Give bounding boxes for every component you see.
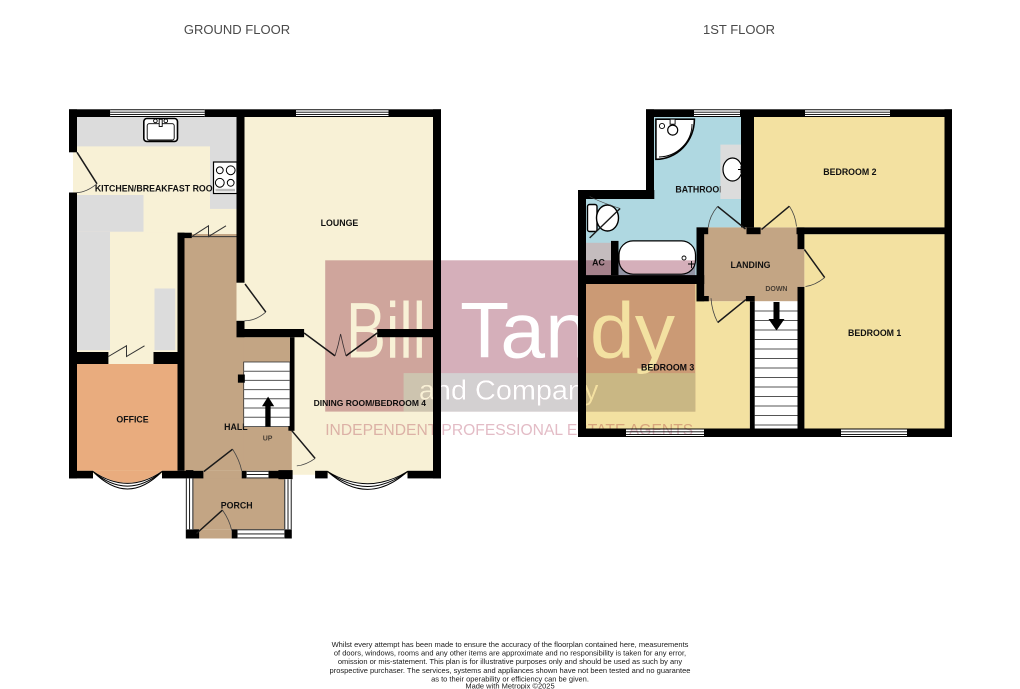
svg-text:DOWN: DOWN (765, 286, 787, 293)
svg-text:KITCHEN/BREAKFAST ROOM: KITCHEN/BREAKFAST ROOM (95, 184, 220, 194)
svg-text:LANDING: LANDING (730, 260, 770, 270)
svg-text:Made with Metropix ©2025: Made with Metropix ©2025 (465, 682, 554, 689)
svg-text:PORCH: PORCH (221, 500, 253, 510)
svg-text:GROUND FLOOR: GROUND FLOOR (184, 22, 290, 37)
svg-text:BATHROOM: BATHROOM (675, 184, 726, 194)
svg-text:1ST FLOOR: 1ST FLOOR (703, 22, 775, 37)
svg-text:BEDROOM 1: BEDROOM 1 (848, 328, 901, 338)
svg-text:INDEPENDENT PROFESSIONAL ESTAT: INDEPENDENT PROFESSIONAL ESTATE AGENTS (325, 422, 693, 439)
svg-text:LOUNGE: LOUNGE (321, 218, 359, 228)
svg-text:OFFICE: OFFICE (116, 415, 148, 425)
svg-text:UP: UP (263, 435, 273, 442)
svg-text:BEDROOM 2: BEDROOM 2 (823, 167, 876, 177)
